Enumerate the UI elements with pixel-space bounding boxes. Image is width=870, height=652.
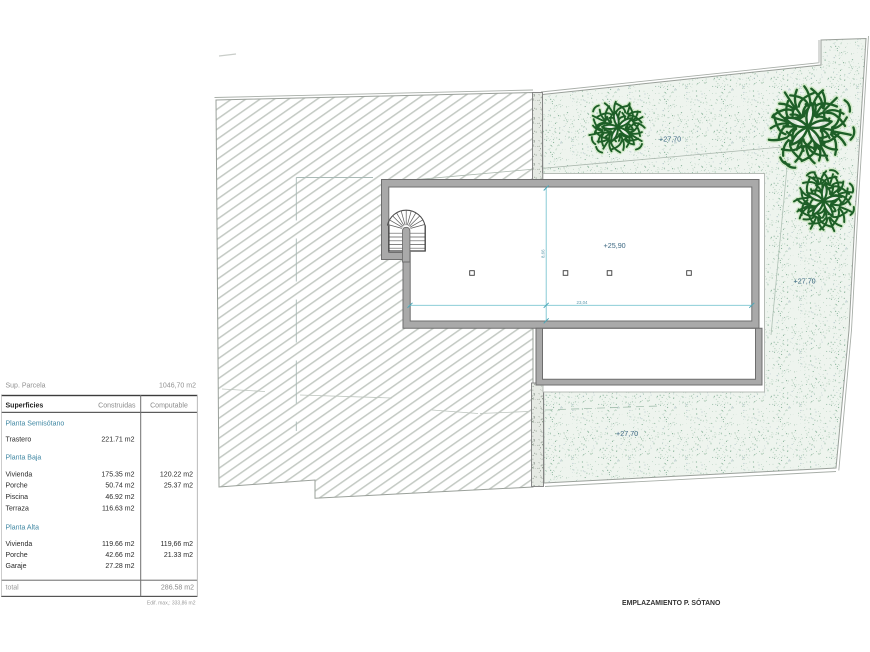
svg-text:Construidas: Construidas: [98, 403, 136, 410]
svg-text:Superficies: Superficies: [6, 403, 44, 410]
svg-text:+27,70: +27,70: [616, 429, 638, 438]
svg-text:50.74 m2: 50.74 m2: [105, 483, 134, 490]
svg-text:25.37 m2: 25.37 m2: [164, 483, 193, 490]
svg-text:Planta Baja: Planta Baja: [6, 454, 42, 461]
svg-text:+27,70: +27,70: [659, 135, 681, 144]
svg-text:119.66 m2: 119.66 m2: [102, 541, 135, 548]
svg-text:116.63 m2: 116.63 m2: [102, 506, 135, 513]
svg-text:8,66: 8,66: [541, 249, 546, 258]
svg-text:+27,70: +27,70: [794, 277, 816, 286]
svg-text:21.33 m2: 21.33 m2: [164, 552, 193, 559]
svg-text:Vivienda: Vivienda: [6, 541, 33, 548]
svg-text:Planta Alta: Planta Alta: [6, 525, 40, 532]
svg-text:42.66 m2: 42.66 m2: [105, 552, 134, 559]
svg-text:221.71 m2: 221.71 m2: [101, 436, 134, 443]
svg-text:27.28 m2: 27.28 m2: [105, 563, 134, 570]
svg-text:Porche: Porche: [6, 552, 28, 559]
svg-text:175.35 m2: 175.35 m2: [101, 472, 134, 479]
svg-text:Vivienda: Vivienda: [6, 472, 33, 479]
svg-text:46.92 m2: 46.92 m2: [105, 494, 134, 501]
svg-text:Terraza: Terraza: [6, 506, 29, 513]
svg-text:Porche: Porche: [6, 483, 28, 490]
svg-text:1046,70 m2: 1046,70 m2: [159, 383, 196, 390]
svg-text:Trastero: Trastero: [6, 436, 32, 443]
svg-text:120.22 m2: 120.22 m2: [160, 472, 193, 479]
svg-text:Computable: Computable: [150, 403, 188, 410]
svg-text:119,66 m2: 119,66 m2: [160, 541, 193, 548]
svg-text:Edif. max,: 333,86 m2: Edif. max,: 333,86 m2: [147, 600, 196, 606]
svg-text:Planta Semisótano: Planta Semisótano: [6, 420, 65, 427]
svg-text:Garaje: Garaje: [6, 563, 27, 570]
svg-text:Sup. Parcela: Sup. Parcela: [6, 383, 46, 390]
svg-text:total: total: [6, 584, 20, 591]
svg-text:286.58 m2: 286.58 m2: [161, 585, 194, 592]
svg-text:EMPLAZAMIENTO P. SÓTANO: EMPLAZAMIENTO P. SÓTANO: [622, 598, 721, 607]
svg-text:Piscina: Piscina: [6, 494, 29, 501]
svg-text:23,04: 23,04: [577, 300, 589, 305]
svg-text:+25,90: +25,90: [604, 241, 626, 250]
